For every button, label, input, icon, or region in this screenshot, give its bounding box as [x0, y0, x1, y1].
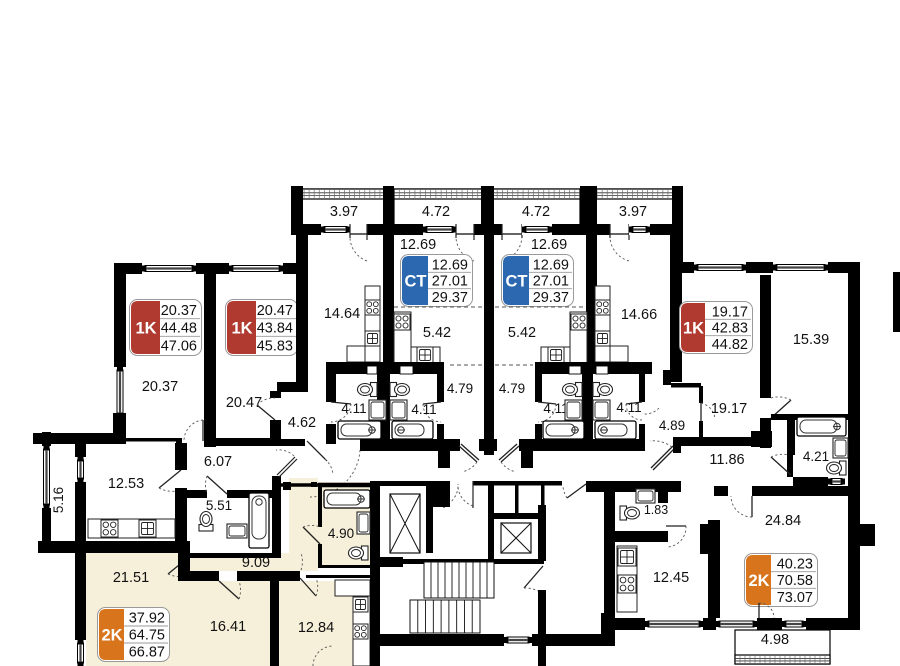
svg-text:37.92: 37.92 — [129, 611, 165, 627]
svg-text:2K: 2K — [748, 572, 769, 590]
svg-text:4.90: 4.90 — [328, 526, 354, 541]
svg-text:24.84: 24.84 — [765, 513, 801, 529]
svg-text:5.51: 5.51 — [206, 498, 232, 513]
svg-text:43.84: 43.84 — [257, 321, 293, 337]
svg-text:5.42: 5.42 — [508, 325, 536, 341]
svg-text:44.82: 44.82 — [712, 337, 748, 353]
svg-text:1K: 1K — [135, 320, 156, 338]
svg-text:20.47: 20.47 — [257, 303, 293, 319]
svg-text:14.64: 14.64 — [324, 306, 360, 322]
svg-text:27.01: 27.01 — [432, 274, 468, 290]
svg-text:CT: CT — [506, 273, 528, 291]
svg-text:4.11: 4.11 — [616, 400, 641, 415]
svg-text:40.23: 40.23 — [777, 557, 813, 573]
svg-text:1.83: 1.83 — [644, 503, 668, 517]
svg-text:5.16: 5.16 — [51, 487, 66, 513]
svg-text:1K: 1K — [231, 320, 252, 338]
svg-text:CT: CT — [405, 273, 427, 291]
svg-text:5.42: 5.42 — [423, 325, 451, 341]
svg-text:4.98: 4.98 — [761, 632, 789, 648]
svg-text:47.06: 47.06 — [161, 338, 197, 354]
svg-text:19.17: 19.17 — [711, 401, 747, 417]
svg-text:1K: 1K — [683, 320, 704, 338]
svg-text:64.75: 64.75 — [129, 628, 165, 644]
svg-text:12.69: 12.69 — [432, 257, 468, 273]
svg-text:6.07: 6.07 — [204, 454, 232, 470]
svg-text:4.72: 4.72 — [522, 204, 550, 220]
svg-text:19.17: 19.17 — [712, 304, 748, 320]
svg-text:66.87: 66.87 — [129, 645, 165, 661]
svg-text:4.89: 4.89 — [659, 418, 685, 433]
svg-text:11.86: 11.86 — [709, 452, 744, 468]
svg-text:15.39: 15.39 — [793, 332, 829, 348]
svg-text:4.79: 4.79 — [447, 381, 473, 396]
svg-text:27.01: 27.01 — [533, 274, 569, 290]
svg-text:70.58: 70.58 — [777, 573, 813, 589]
svg-text:20.47: 20.47 — [226, 395, 262, 411]
svg-text:73.07: 73.07 — [777, 590, 813, 606]
svg-text:12.69: 12.69 — [533, 257, 569, 273]
svg-text:44.48: 44.48 — [161, 321, 197, 337]
svg-text:29.37: 29.37 — [432, 290, 468, 306]
svg-text:3.97: 3.97 — [619, 204, 647, 220]
svg-text:14.66: 14.66 — [621, 307, 657, 323]
svg-text:4.11: 4.11 — [411, 402, 436, 417]
svg-text:12.69: 12.69 — [400, 237, 436, 253]
svg-text:42.83: 42.83 — [712, 321, 748, 337]
svg-text:9.09: 9.09 — [242, 555, 270, 571]
svg-text:21.51: 21.51 — [113, 570, 149, 586]
svg-text:29.37: 29.37 — [533, 290, 569, 306]
svg-text:4.21: 4.21 — [803, 449, 829, 464]
svg-text:16.41: 16.41 — [210, 619, 246, 635]
svg-text:4.79: 4.79 — [499, 381, 525, 396]
svg-text:4.62: 4.62 — [288, 415, 316, 431]
svg-text:12.45: 12.45 — [653, 570, 689, 586]
svg-text:4.11: 4.11 — [341, 401, 366, 416]
svg-text:45.83: 45.83 — [257, 338, 293, 354]
svg-text:3.97: 3.97 — [330, 204, 358, 220]
svg-text:4.72: 4.72 — [422, 204, 450, 220]
svg-text:2K: 2K — [101, 627, 122, 645]
svg-text:12.69: 12.69 — [531, 237, 567, 253]
svg-text:20.37: 20.37 — [161, 303, 197, 319]
svg-text:12.84: 12.84 — [298, 620, 334, 636]
svg-text:20.37: 20.37 — [142, 379, 178, 395]
svg-text:12.53: 12.53 — [108, 476, 144, 492]
